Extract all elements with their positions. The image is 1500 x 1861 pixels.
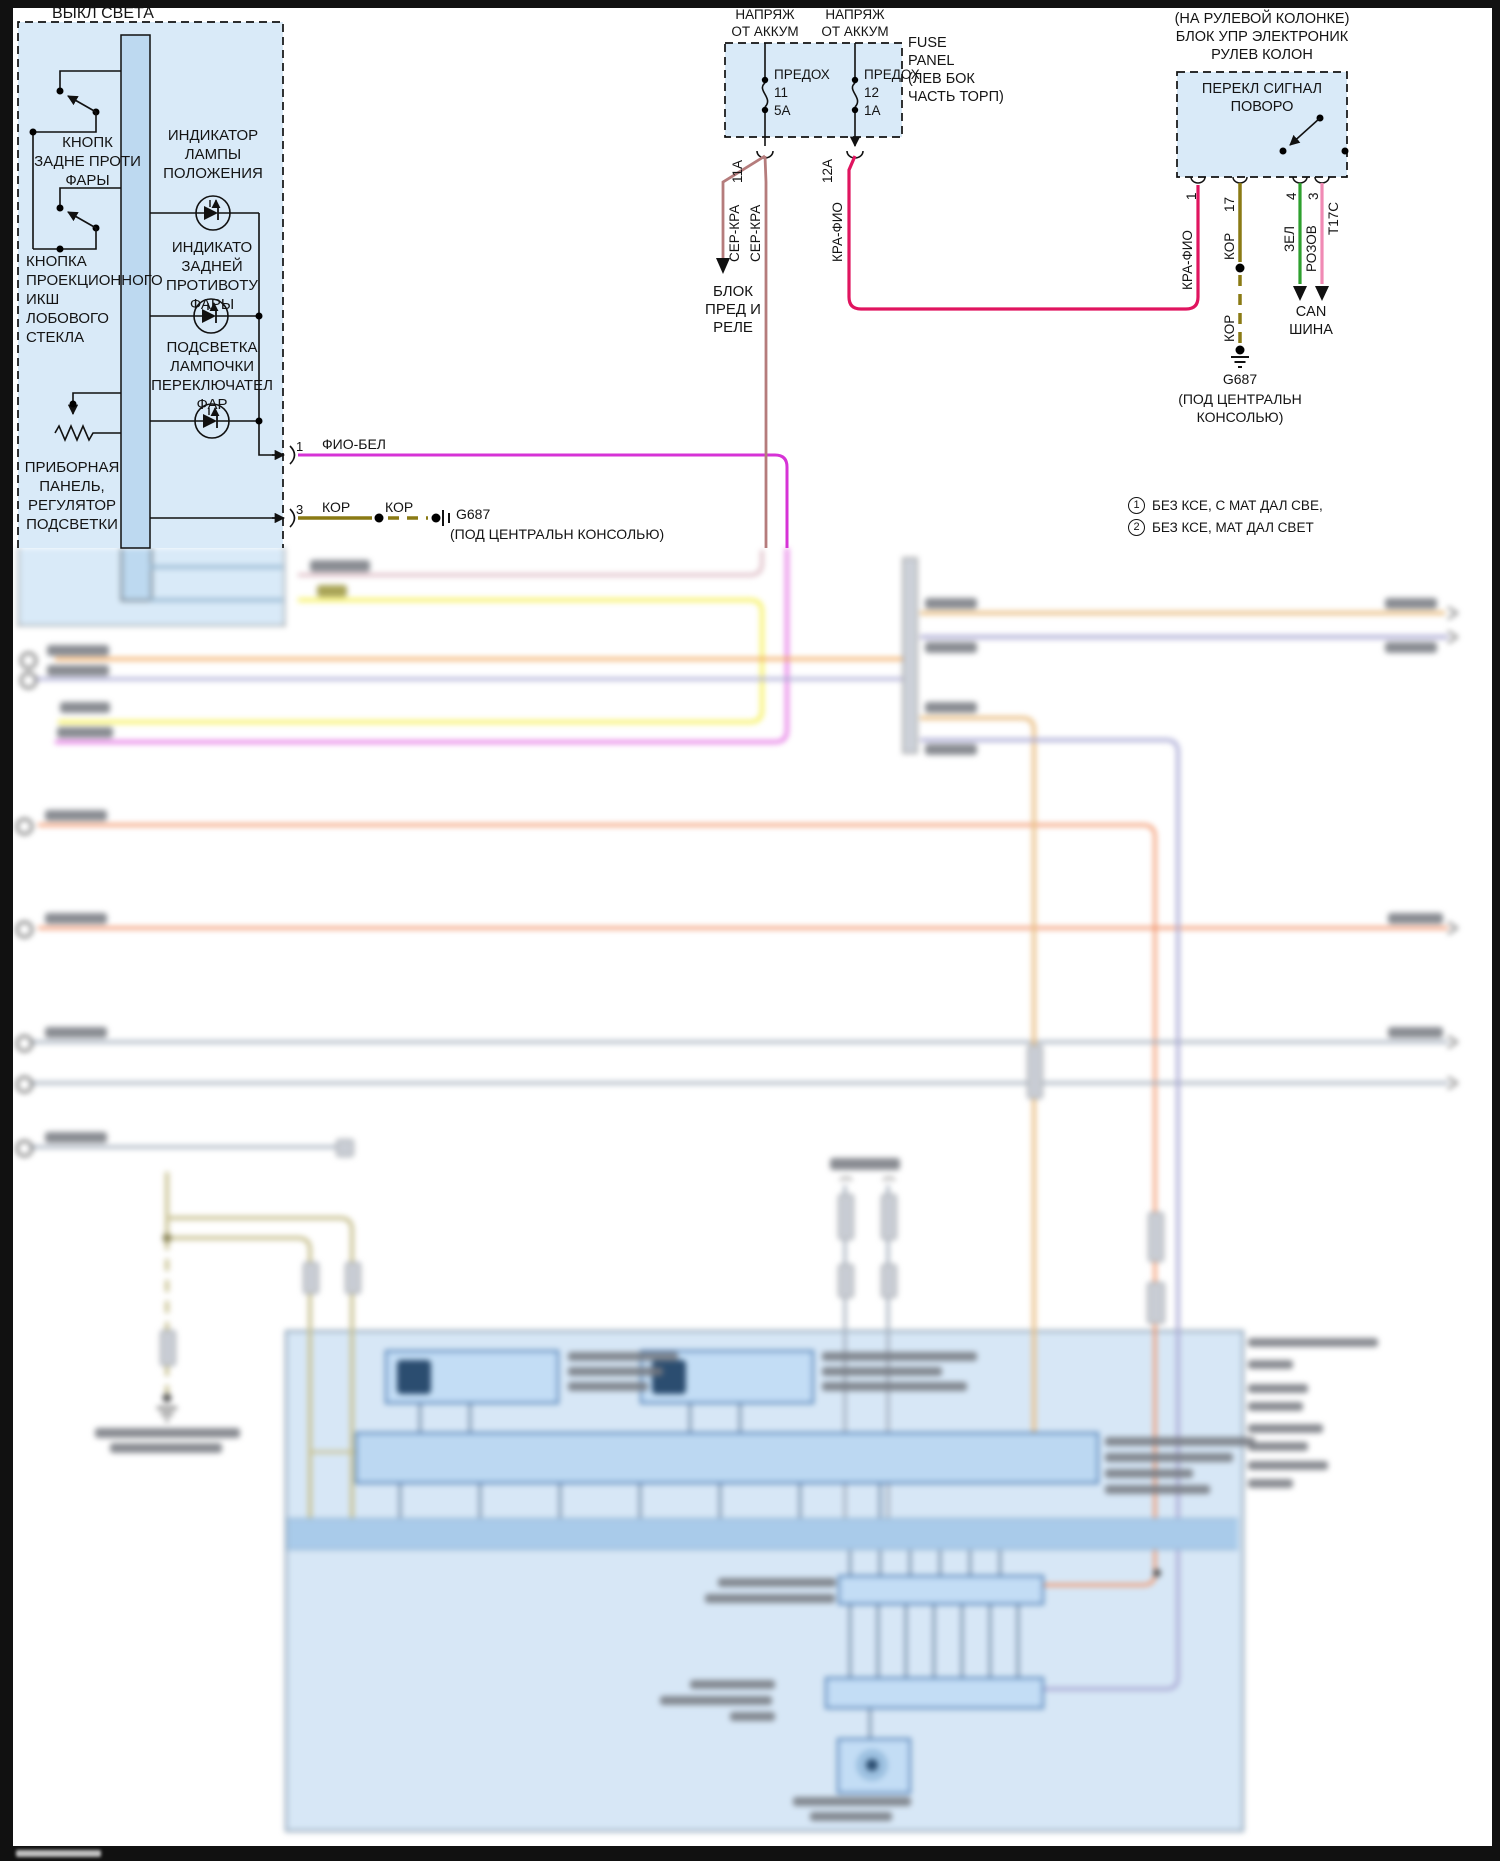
- turn-signal-header: (НА РУЛЕВОЙ КОЛОНКЕ) БЛОК УПР ЭЛЕКТРОНИК…: [1152, 10, 1372, 64]
- ts-wire-kor-b: КОР: [1222, 315, 1237, 342]
- frame-left: [0, 0, 13, 1861]
- fuse-dest-label: БЛОК ПРЕД И РЕЛЕ: [693, 283, 773, 337]
- pin3-splice-label: КОР: [385, 498, 413, 517]
- ts-wire-kra-fio: КРА-ФИО: [1180, 230, 1195, 290]
- ts-wire-zel: ЗЕЛ: [1282, 226, 1297, 252]
- watermark: [16, 1850, 101, 1857]
- pin1-number: 1: [296, 437, 303, 456]
- dimmer-label: ПРИБОРНАЯ ПАНЕЛЬ, РЕГУЛЯТОР ПОДСВЕТКИ: [14, 458, 130, 534]
- can-bus-label: CAN ШИНА: [1271, 303, 1351, 339]
- footnote-2-marker: 2: [1128, 519, 1145, 536]
- fuse1-label: ПРЕДОХ 11 5А: [774, 66, 830, 120]
- ground-g687-right: G687: [1205, 370, 1275, 389]
- indicator2-label: ИНДИКАТО ЗАДНЕЙ ПРОТИВОТУ ФАРЫ: [152, 238, 272, 314]
- ts-pin3-number: 3: [1306, 192, 1321, 200]
- wiring-diagram-page: ВЫКЛ СВЕТА КНОПК ЗАДНЕ ПРОТИ ФАРЫ ИНДИКА…: [0, 0, 1500, 1861]
- footnote-1-text: БЕЗ КСЕ, С МАТ ДАЛ СВЕ,: [1152, 496, 1323, 515]
- indicator1-label: ИНДИКАТОР ЛАМПЫ ПОЛОЖЕНИЯ: [152, 126, 274, 183]
- ts-pin4-number: 4: [1284, 192, 1299, 200]
- indicator3-label: ПОДСВЕТКА ЛАМПОЧКИ ПЕРЕКЛЮЧАТЕЛ ФАР: [148, 338, 276, 414]
- wire-ser-kra-label-2: СЕР-КРА: [748, 205, 763, 262]
- footnote-2-text: БЕЗ КСЕ, МАТ ДАЛ СВЕТ: [1152, 518, 1314, 537]
- ts-pin17-number: 17: [1222, 197, 1237, 212]
- wire-ser-kra-label-1: СЕР-КРА: [727, 205, 742, 262]
- frame-bottom: [0, 1846, 1500, 1861]
- pin1-wire-label: ФИО-БЕЛ: [322, 435, 386, 454]
- ts-wire-rozov: РОЗОВ: [1304, 225, 1319, 272]
- turn-signal-box-label: ПЕРЕКЛ СИГНАЛ ПОВОРО: [1177, 80, 1347, 116]
- pin3-wire-label: КОР: [322, 498, 350, 517]
- ts-connector-id: Т17С: [1326, 202, 1341, 235]
- switch1-label: КНОПК ЗАДНЕ ПРОТИ ФАРЫ: [20, 133, 155, 190]
- fuse-panel-name: FUSE PANEL (ЛЕВ БОК ЧАСТЬ ТОРП): [908, 34, 1004, 106]
- ts-wire-kor-a: КОР: [1222, 233, 1237, 260]
- ground-g687-left: G687: [456, 505, 490, 524]
- ts-pin1-number: 1: [1184, 192, 1199, 200]
- fuse1-pin-label: 11А: [730, 160, 745, 183]
- frame-top: [0, 0, 1500, 8]
- pin3-number: 3: [296, 500, 303, 519]
- footnote-1-marker: 1: [1128, 497, 1145, 514]
- feed2-label: НАПРЯЖ ОТ АККУМ: [805, 6, 905, 40]
- frame-right: [1492, 0, 1500, 1861]
- wire-kra-fio-label-1: КРА-ФИО: [830, 202, 845, 262]
- fuse2-pin-label: 12А: [820, 159, 835, 183]
- ground-g687-left-note: (ПОД ЦЕНТРАЛЬН КОНСОЛЬЮ): [450, 525, 664, 544]
- ground-g687-right-note: (ПОД ЦЕНТРАЛЬН КОНСОЛЬЮ): [1150, 390, 1330, 426]
- feed1-label: НАПРЯЖ ОТ АККУМ: [715, 6, 815, 40]
